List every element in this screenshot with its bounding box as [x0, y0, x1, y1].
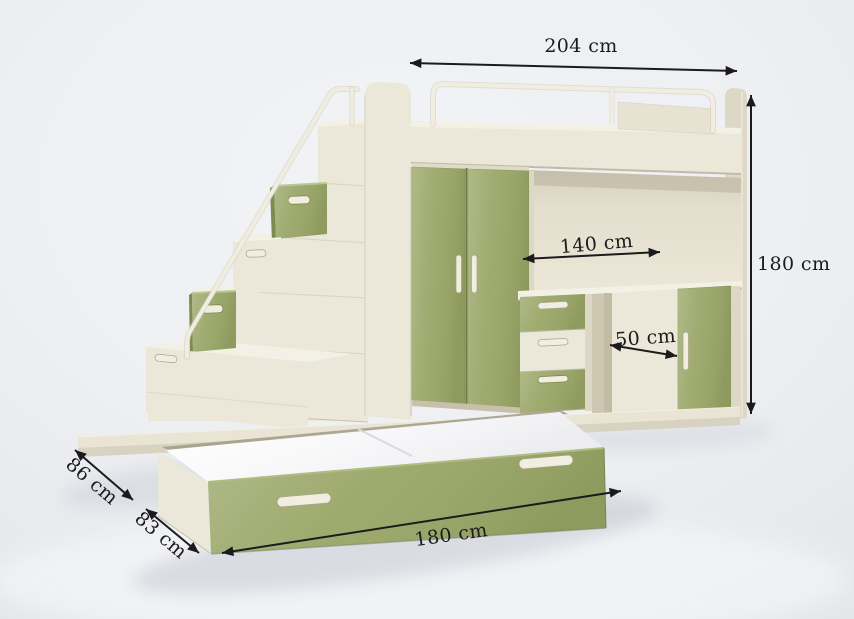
cabinet-door-handle [683, 332, 689, 370]
drawer-unit-side [585, 294, 592, 411]
desk-drawer-handle [538, 375, 568, 383]
knee-space-shadow [604, 293, 612, 420]
wardrobe-handle [456, 255, 462, 293]
desk-drawer-handle [538, 301, 568, 309]
dimension-label: 204 cm [544, 35, 617, 57]
wardrobe [412, 163, 534, 414]
furniture-illustration: 204 cm 180 cm 140 cm 50 cm 86 cm 83 cm 1… [0, 0, 854, 619]
desk-drawer-handle [538, 338, 568, 346]
desk-drawer-unit [520, 294, 592, 413]
desk-drawer-3-sheen [520, 369, 585, 413]
desk-cabinet [612, 286, 740, 421]
desk-drawer-2 [520, 329, 585, 372]
dimension-label: 180 cm [757, 253, 830, 275]
product-dimension-diagram: 204 cm 180 cm 140 cm 50 cm 86 cm 83 cm 1… [0, 0, 854, 619]
loft-bed-unit [365, 82, 747, 421]
desk-drawer-1-sheen [520, 294, 585, 332]
wardrobe-handle [472, 255, 478, 293]
desk [518, 281, 742, 421]
step-drawer-handle [288, 196, 310, 205]
dimension-label: 50 cm [614, 325, 676, 351]
step-drawer-handle [246, 250, 266, 258]
step-box-4-sheen [274, 183, 327, 239]
headboard-panel [365, 82, 411, 420]
cabinet-side-edge [731, 286, 740, 414]
